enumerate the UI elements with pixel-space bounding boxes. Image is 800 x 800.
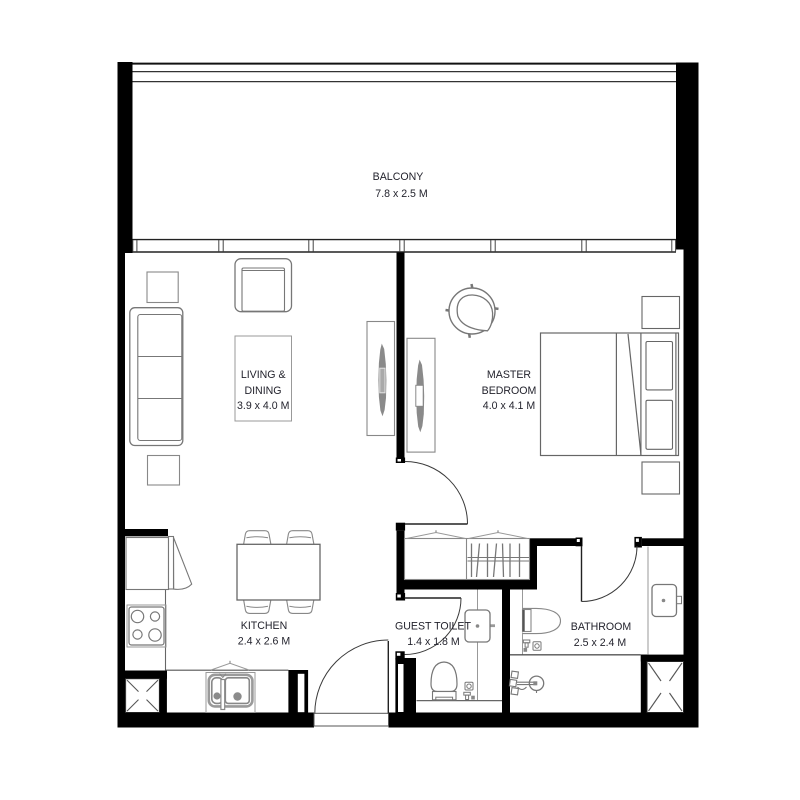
svg-text:BALCONY: BALCONY bbox=[373, 171, 424, 183]
svg-text:BEDROOM: BEDROOM bbox=[482, 385, 537, 397]
svg-text:GUEST TOILET: GUEST TOILET bbox=[395, 621, 471, 633]
svg-text:KITCHEN: KITCHEN bbox=[241, 620, 288, 632]
svg-text:BATHROOM: BATHROOM bbox=[571, 621, 631, 633]
svg-text:LIVING &: LIVING & bbox=[241, 369, 286, 381]
svg-text:4.0 x 4.1 M: 4.0 x 4.1 M bbox=[483, 400, 535, 412]
svg-text:MASTER: MASTER bbox=[487, 369, 531, 381]
svg-text:1.4 x 1.8 M: 1.4 x 1.8 M bbox=[407, 636, 459, 648]
svg-text:2.4 x 2.6 M: 2.4 x 2.6 M bbox=[238, 636, 290, 648]
svg-text:7.8 x 2.5 M: 7.8 x 2.5 M bbox=[375, 188, 427, 200]
svg-text:3.9 x 4.0 M: 3.9 x 4.0 M bbox=[237, 400, 289, 412]
svg-text:DINING: DINING bbox=[244, 385, 281, 397]
svg-text:2.5 x 2.4 M: 2.5 x 2.4 M bbox=[574, 637, 626, 649]
